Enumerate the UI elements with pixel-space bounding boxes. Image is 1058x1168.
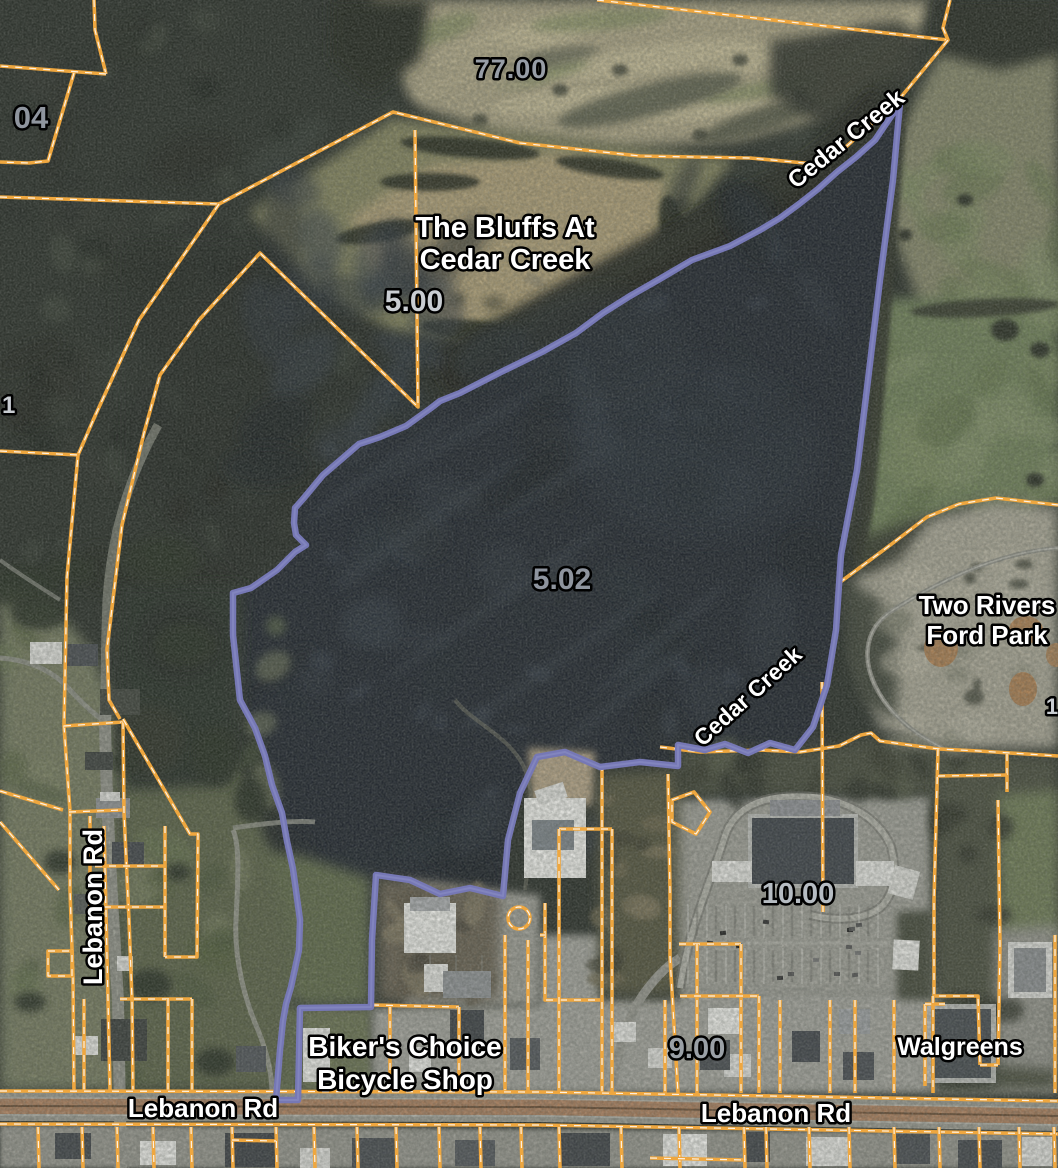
svg-text:1: 1: [2, 392, 15, 419]
svg-text:Cedar Creek: Cedar Creek: [420, 244, 592, 276]
svg-text:5.02: 5.02: [533, 563, 591, 596]
svg-text:1: 1: [1046, 694, 1058, 719]
svg-text:9.00: 9.00: [669, 1033, 725, 1065]
svg-text:04: 04: [14, 100, 49, 135]
svg-text:Lebanon Rd: Lebanon Rd: [701, 1098, 851, 1128]
svg-text:Bicycle Shop: Bicycle Shop: [317, 1064, 493, 1095]
svg-text:Ford Park: Ford Park: [926, 620, 1048, 650]
svg-text:Biker's Choice: Biker's Choice: [308, 1031, 501, 1062]
svg-text:77.00: 77.00: [475, 54, 548, 84]
svg-text:Lebanon Rd: Lebanon Rd: [78, 829, 108, 985]
svg-text:10.00: 10.00: [762, 878, 835, 910]
svg-text:Walgreens: Walgreens: [897, 1033, 1023, 1061]
svg-text:The Bluffs At: The Bluffs At: [415, 212, 595, 244]
svg-text:Lebanon Rd: Lebanon Rd: [128, 1093, 278, 1123]
svg-text:5.00: 5.00: [385, 285, 443, 318]
svg-text:Two Rivers: Two Rivers: [919, 590, 1056, 620]
